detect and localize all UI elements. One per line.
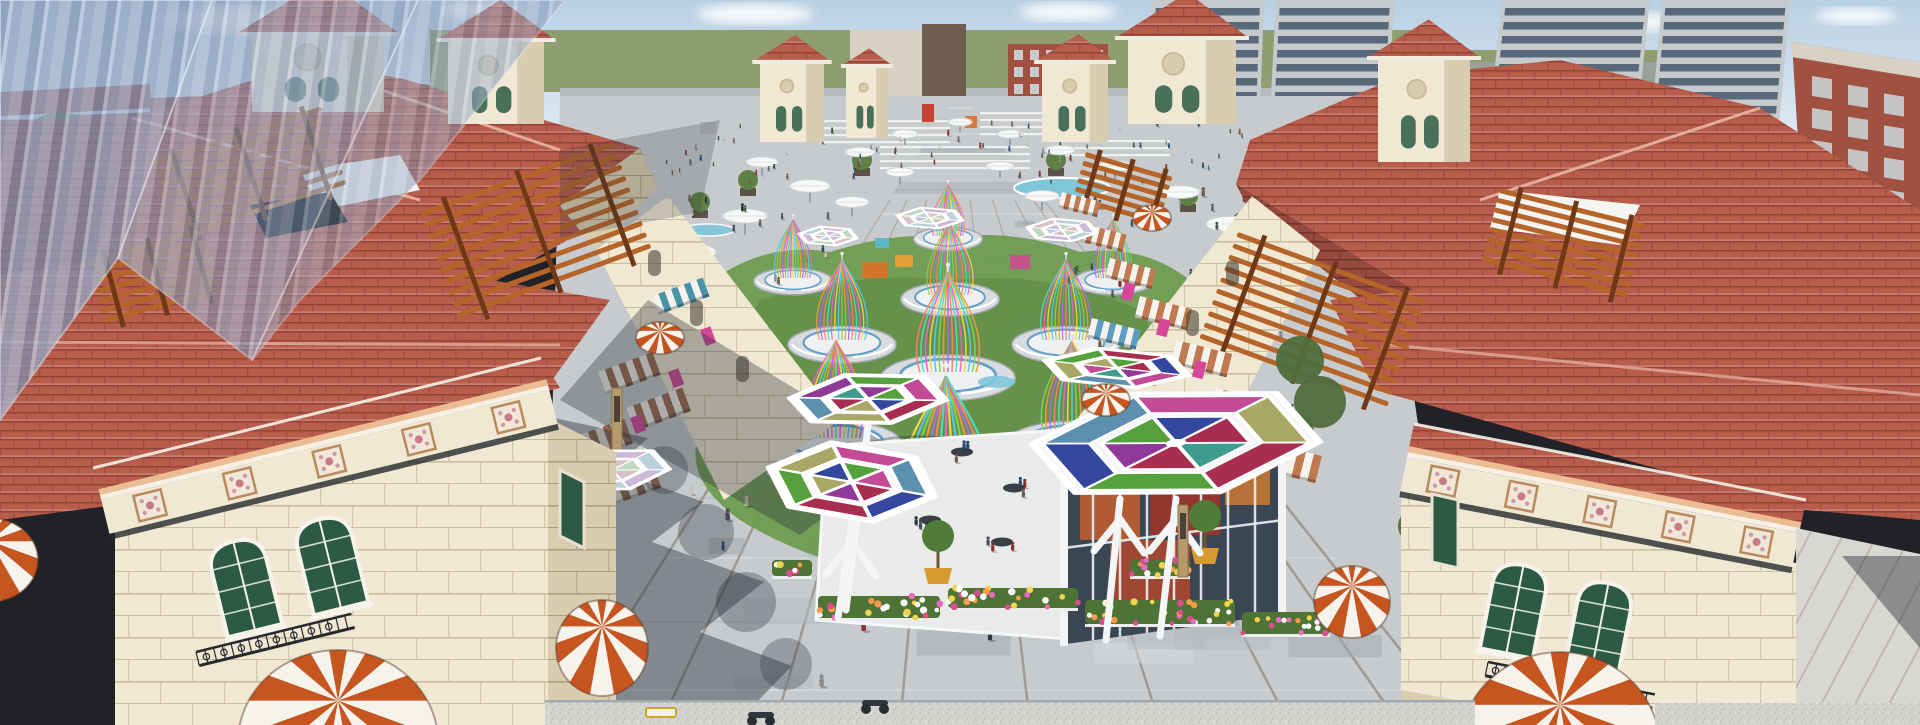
market-stall: [862, 262, 888, 278]
medallion-tile: [1584, 496, 1616, 527]
market-stall: [895, 255, 913, 267]
architectural-render: [0, 0, 1920, 725]
cloud: [697, 4, 813, 24]
medallion-tile: [402, 423, 435, 455]
market-stall: [875, 238, 889, 248]
cloud: [1020, 3, 1116, 21]
granite-texture-band: [545, 702, 1475, 725]
medallion-tile: [133, 489, 166, 521]
medallion-tile: [1427, 466, 1459, 497]
arched-doorway: [648, 250, 661, 276]
arched-doorway: [1226, 260, 1239, 286]
market-stall: [922, 104, 934, 122]
foreground-details: [545, 700, 1920, 725]
dark-slab-building: [922, 24, 966, 104]
cloud: [1816, 8, 1896, 24]
side-window: [560, 470, 584, 548]
granite-texture-band: [1655, 703, 1920, 725]
tree-planter: [738, 170, 758, 196]
flower-bed: [946, 585, 1081, 611]
medallion-tile: [1740, 527, 1772, 558]
market-stall: [1010, 255, 1030, 269]
roof-tower: [841, 48, 893, 138]
arched-doorway: [690, 300, 703, 326]
medallion-tile: [223, 467, 256, 499]
arched-doorway: [1186, 310, 1199, 336]
flower-bed: [772, 560, 812, 579]
medallion-tile: [1662, 511, 1694, 542]
lamp-bollard: [1178, 505, 1188, 577]
medallion-tile: [313, 445, 346, 477]
lamp-bollard: [612, 388, 622, 460]
side-window: [1432, 494, 1458, 568]
medallion-tile: [492, 401, 525, 433]
medallion-tile: [1505, 481, 1537, 512]
